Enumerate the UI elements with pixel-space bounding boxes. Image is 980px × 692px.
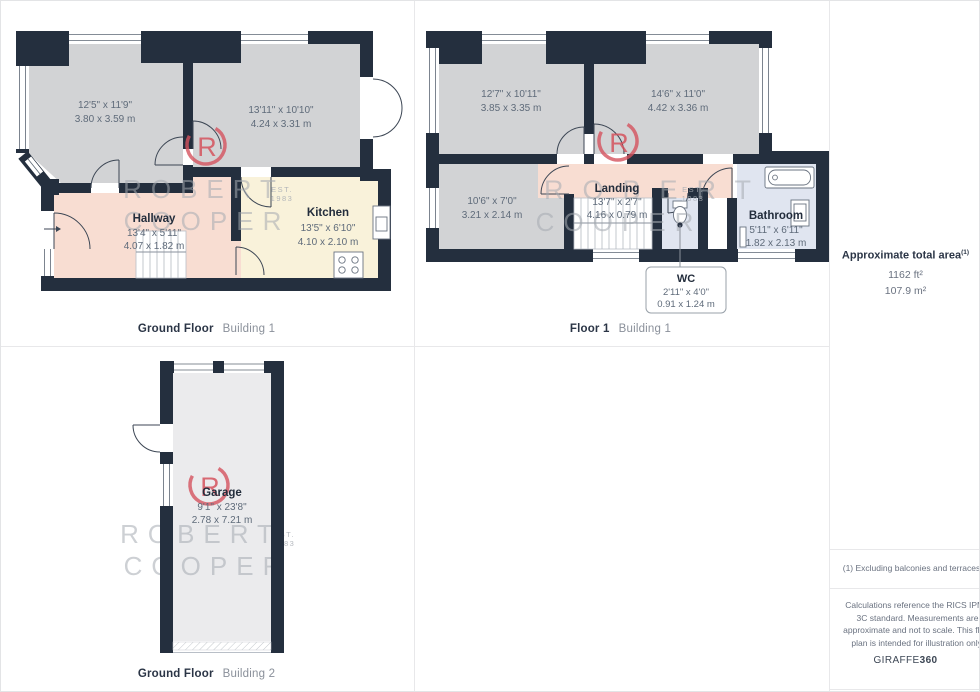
ground-floor-building2-cell: R ROBERT COOPER EST. 1983 [1, 346, 412, 692]
svg-text:2'11" x 4'0": 2'11" x 4'0" [663, 287, 709, 298]
floor1-building1-label: Floor 1Building 1 [412, 323, 829, 335]
total-area-ft: 1162 ft² [830, 267, 980, 283]
exclusion-footnote: (1) Excluding balconies and terraces [830, 562, 980, 574]
disclaimer-text: Calculations reference the RICS IPMS 3C … [830, 599, 980, 649]
giraffe360-brand: GIRAFFE360 [830, 655, 980, 666]
bathroom-name: Bathroom [749, 210, 803, 222]
floor1-building1-cell: R ROBERT COOPER EST. 1983 WC 2'11" x 4'0… [412, 1, 829, 346]
reception2-imperial: 13'11" x 10'10" [248, 105, 314, 116]
svg-text:13'7" x 2'7": 13'7" x 2'7" [592, 197, 642, 208]
floor1-building1-plan: R ROBERT COOPER EST. 1983 WC 2'11" x 4'0… [412, 1, 829, 346]
bedroom2-metric: 4.42 x 3.36 m [648, 103, 709, 114]
svg-text:4.07 x 1.82 m: 4.07 x 1.82 m [124, 241, 185, 252]
svg-text:EST.: EST. [271, 185, 293, 194]
garage-door-icon [173, 642, 271, 650]
svg-text:1983: 1983 [271, 194, 294, 203]
stove-icon [334, 252, 363, 278]
kitchen-name: Kitchen [307, 207, 349, 219]
bedroom1-imperial: 12'7" x 10'11" [481, 89, 541, 100]
total-area-title: Approximate total area(1) [830, 249, 980, 262]
svg-text:R: R [609, 128, 629, 158]
svg-text:9'1" x 23'8": 9'1" x 23'8" [197, 502, 247, 513]
svg-text:4.10 x 2.10 m: 4.10 x 2.10 m [298, 237, 359, 248]
sidebar-line-1 [829, 549, 980, 550]
svg-text:1.82 x 2.13 m: 1.82 x 2.13 m [746, 238, 807, 249]
ground-floor-building2-plan: R ROBERT COOPER EST. 1983 [1, 346, 412, 692]
ground-floor-building1-label: Ground FloorBuilding 1 [1, 323, 412, 335]
garage-name: Garage [202, 487, 242, 499]
svg-text:COOPER: COOPER [124, 551, 291, 581]
svg-text:2.78 x 7.21 m: 2.78 x 7.21 m [192, 515, 253, 526]
svg-text:4.16 x 0.79 m: 4.16 x 0.79 m [587, 210, 648, 221]
bedroom2-imperial: 14'6" x 11'0" [651, 89, 706, 100]
ground-floor-building2-label: Ground FloorBuilding 2 [1, 668, 412, 680]
svg-text:5'11" x 6'11": 5'11" x 6'11" [749, 225, 803, 236]
total-area-m: 107.9 m² [830, 283, 980, 299]
wc-name: WC [677, 273, 695, 285]
svg-text:0.91 x 1.24 m: 0.91 x 1.24 m [657, 299, 715, 310]
watermark-line1: ROBERT [123, 174, 285, 204]
svg-text:13'4" x 5'11": 13'4" x 5'11" [127, 228, 182, 239]
svg-text:ROBERT: ROBERT [544, 175, 770, 205]
reception2-metric: 4.24 x 3.31 m [251, 119, 312, 130]
door-arcs [133, 425, 160, 452]
svg-text:1983: 1983 [682, 194, 705, 203]
bedroom1-metric: 3.85 x 3.35 m [481, 103, 542, 114]
footnote-ref: (1) [961, 249, 969, 256]
hallway-name: Hallway [133, 213, 176, 225]
ground-floor-building1-cell: R ROBERT COOPER EST. 1983 12'5" x 11'9" … [1, 1, 412, 346]
sidebar-line-3 [829, 689, 980, 690]
logo-letter: R [197, 132, 217, 162]
sidebar-line-2 [829, 588, 980, 589]
svg-text:13'5" x 6'10": 13'5" x 6'10" [301, 223, 356, 234]
total-area-panel: Approximate total area(1) 1162 ft² 107.9… [830, 249, 980, 299]
reception1-imperial: 12'5" x 11'9" [78, 100, 133, 111]
ground-floor-building1-plan: R ROBERT COOPER EST. 1983 12'5" x 11'9" … [1, 1, 412, 346]
row-divider [1, 346, 829, 347]
floorplan-page: R ROBERT COOPER EST. 1983 12'5" x 11'9" … [0, 0, 980, 692]
bedroom3-imperial: 10'6" x 7'0" [467, 196, 517, 207]
landing-name: Landing [595, 183, 640, 195]
reception1-metric: 3.80 x 3.59 m [75, 114, 136, 125]
garage-door [173, 642, 271, 653]
svg-text:EST.: EST. [682, 185, 704, 194]
bedroom3-metric: 3.21 x 2.14 m [462, 210, 523, 221]
